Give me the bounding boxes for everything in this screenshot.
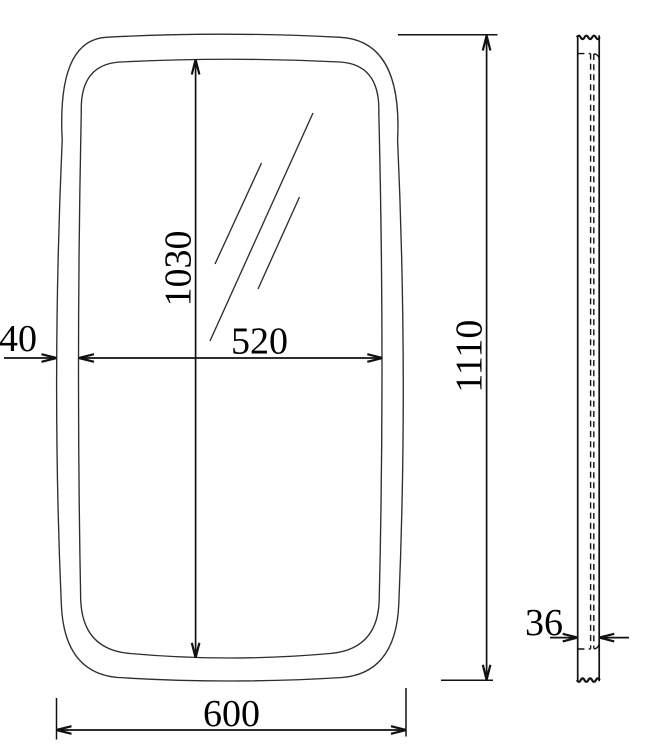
- svg-text:40: 40: [0, 318, 37, 360]
- svg-text:600: 600: [203, 693, 260, 735]
- svg-text:36: 36: [525, 602, 563, 644]
- svg-text:1030: 1030: [158, 231, 200, 307]
- svg-text:520: 520: [231, 321, 288, 363]
- svg-text:1110: 1110: [449, 320, 491, 393]
